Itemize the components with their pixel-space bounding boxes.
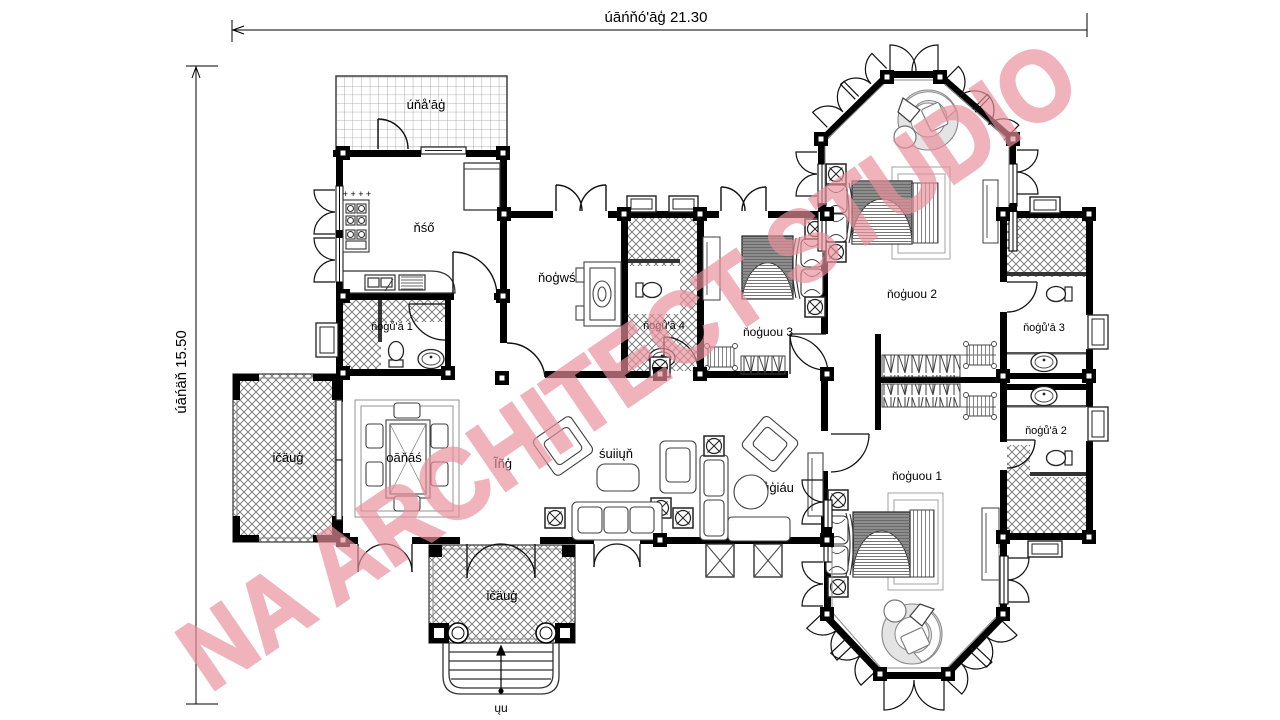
- svg-text:úāńäň 15.50: úāńäň 15.50: [173, 330, 190, 413]
- svg-text:ňoģů'ā 2: ňoģů'ā 2: [1025, 424, 1067, 437]
- svg-text:ňoģuou 1: ňoģuou 1: [892, 469, 942, 483]
- svg-text:ňoģwśz: ňoģwśz: [538, 270, 582, 285]
- svg-text:ųu: ųu: [494, 701, 507, 715]
- svg-text:úāńňó'āģ 21.30: úāńňó'āģ 21.30: [605, 9, 708, 26]
- svg-text:+ + + +: + + + +: [343, 189, 372, 199]
- svg-text:ňoģů'ā 3: ňoģů'ā 3: [1023, 321, 1065, 334]
- svg-text:ičäuģ: ičäuģ: [486, 588, 517, 603]
- svg-text:ňoģů'ā 1: ňoģů'ā 1: [371, 320, 413, 333]
- svg-text:úňå'āģ: úňå'āģ: [407, 97, 446, 112]
- svg-text:ňoģuou 2: ňoģuou 2: [887, 287, 937, 301]
- svg-text:ňśő: ňśő: [414, 220, 435, 235]
- svg-text:ičäuģ: ičäuģ: [272, 450, 303, 465]
